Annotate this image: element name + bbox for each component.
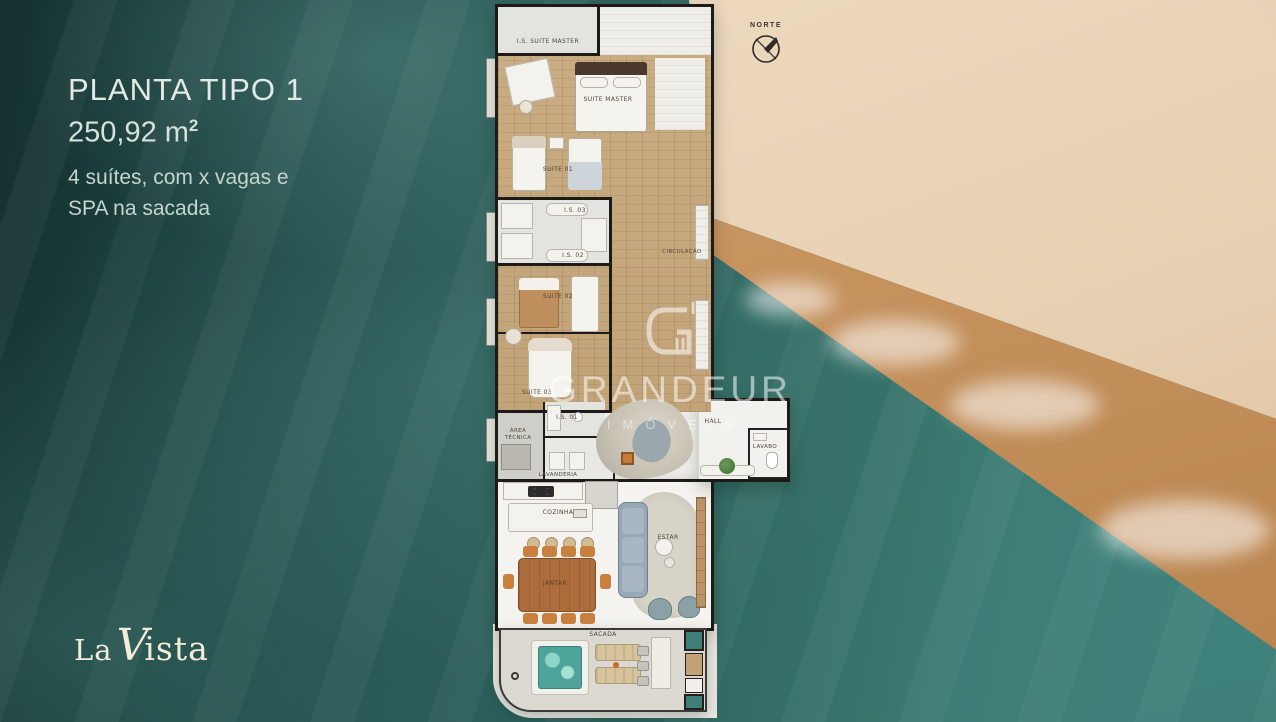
- lounger-table-item: [613, 662, 619, 668]
- area-superscript: 2: [189, 116, 198, 135]
- room-label-is-suite-master: I.S. SUITE MASTER: [503, 38, 593, 45]
- shower: [501, 203, 533, 229]
- wall: [498, 53, 600, 56]
- wall: [498, 263, 612, 266]
- dining-chair: [580, 546, 595, 557]
- lavabo-sink: [753, 433, 767, 441]
- side-table: [664, 557, 675, 568]
- wood-deck-box: [685, 653, 703, 676]
- plant: [719, 458, 735, 474]
- sofa-cushion: [622, 508, 644, 534]
- planter: [684, 694, 704, 710]
- room-label-suite-03: SUITE 03: [507, 389, 567, 396]
- pillow: [519, 278, 559, 290]
- dining-chair: [523, 613, 538, 624]
- tv-console: [696, 497, 706, 608]
- page-title: PLANTA TIPO 1: [68, 72, 304, 108]
- planter: [684, 630, 704, 651]
- bathroom-floor-master: [498, 7, 598, 55]
- dining-chair: [503, 574, 514, 589]
- balcony-counter: [651, 637, 671, 689]
- dryer: [569, 452, 585, 470]
- balcony-stool: [637, 676, 649, 686]
- dining-chair: [600, 574, 611, 589]
- dining-chair: [523, 546, 538, 557]
- cooktop: [528, 486, 554, 497]
- suite02-chaise: [571, 276, 599, 332]
- logo-part-la: La: [74, 633, 113, 667]
- armchair: [505, 328, 522, 345]
- sun-lounger: [595, 644, 641, 661]
- pillow: [613, 77, 641, 88]
- floor-drain: [511, 672, 519, 680]
- sofa-cushion: [622, 566, 644, 592]
- lavabo-toilet: [766, 452, 778, 469]
- room-label-jantar: JANTAR: [525, 580, 585, 587]
- room-label-lavanderia: LAVANDERIA: [523, 472, 593, 478]
- vanity: [581, 218, 607, 252]
- dining-chair: [561, 613, 576, 624]
- description-line-1: 4 suítes, com x vagas e: [68, 162, 304, 193]
- room-label-estar: ESTAR: [638, 534, 698, 541]
- description: 4 suítes, com x vagas e SPA na sacada: [68, 162, 304, 224]
- wall: [609, 197, 612, 412]
- wall: [498, 197, 612, 200]
- nightstand: [549, 137, 564, 149]
- dining-chair: [561, 546, 576, 557]
- room-label-is-03: I.S. 03: [545, 207, 605, 214]
- master-headboard: [575, 62, 647, 75]
- spa-hot-tub: [538, 646, 582, 689]
- pillow: [580, 77, 608, 88]
- room-label-sacada: SACADA: [573, 631, 633, 638]
- storage-box: [685, 678, 703, 693]
- stool: [519, 100, 533, 114]
- room-label-suite-master: SUITE MASTER: [568, 96, 648, 103]
- technical-equipment: [501, 444, 531, 470]
- washer: [549, 452, 565, 470]
- balcony-stool: [637, 661, 649, 671]
- bed-headboard: [512, 136, 546, 148]
- description-line-2: SPA na sacada: [68, 193, 304, 224]
- room-label-lavabo: LAVABO: [735, 444, 795, 450]
- compass: NORTE: [740, 22, 792, 70]
- corridor-closet: [695, 300, 709, 370]
- room-label-suite-01: SUITE 01: [528, 166, 588, 173]
- dining-chair: [542, 613, 557, 624]
- dining-chair: [542, 546, 557, 557]
- page: PLANTA TIPO 1 250,92 m2 4 suítes, com x …: [0, 0, 1276, 722]
- armchair: [648, 598, 672, 620]
- room-label-is-02: I.S. 02: [543, 252, 603, 259]
- room-label-cozinha: COZINHA: [528, 509, 588, 516]
- header: PLANTA TIPO 1 250,92 m2 4 suítes, com x …: [68, 72, 304, 224]
- shower: [501, 233, 533, 259]
- room-label-is-01: I.S. 01: [537, 414, 597, 421]
- lavista-logo: LaVista: [74, 620, 209, 671]
- compass-label: NORTE: [740, 22, 792, 29]
- wall: [597, 7, 600, 55]
- room-label-circulacao: CIRCULAÇÃO: [646, 249, 718, 255]
- room-label-area-tecnica: ÁREA TÉCNICA: [497, 428, 539, 441]
- hall-art-piece: [621, 452, 634, 465]
- compass-icon: [749, 31, 783, 65]
- dining-chair: [580, 613, 595, 624]
- room-label-suite-02: SUITE 02: [528, 293, 588, 300]
- floor-plan: I.S. SUITE MASTER SUITE MASTER SUITE 01 …: [483, 0, 803, 722]
- closet-shelving-right: [655, 58, 705, 130]
- pillow: [528, 338, 572, 351]
- room-label-hall: HALL: [688, 418, 738, 425]
- balcony-stool: [637, 646, 649, 656]
- area-value: 250,92 m2: [68, 116, 304, 150]
- sun-lounger: [595, 667, 641, 684]
- closet-shelving-top: [598, 7, 711, 55]
- logo-part-ista: ista: [144, 629, 208, 668]
